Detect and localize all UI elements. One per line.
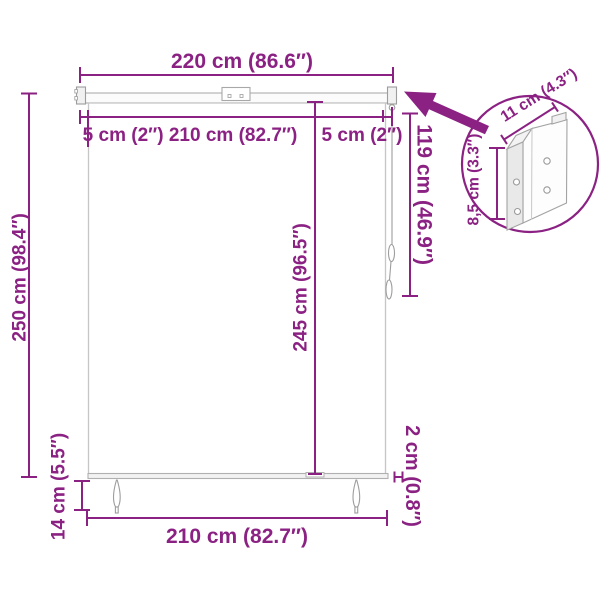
fabric-panel	[89, 103, 386, 474]
dim-label-bottom-width: 210 cm (82.7″)	[87, 525, 387, 548]
dim-label-total-height: 250 cm (98.4″)	[11, 197, 32, 357]
dim-label-top-width: 220 cm (86.6″)	[92, 50, 392, 73]
top-rail	[75, 87, 397, 104]
bottom-rail	[88, 473, 388, 479]
dim-line-bottom-width	[87, 510, 387, 526]
dim-label-bracket-height: 8,5 cm (3.3″)	[465, 120, 482, 240]
dim-label-ground-clearance: 14 cm (5.5″)	[50, 406, 71, 566]
dim-label-fabric-height: 245 cm (96.5″)	[292, 207, 313, 367]
cord-pull-left	[114, 480, 121, 513]
dim-label-cord-height: 119 cm (46.9″)	[412, 115, 435, 275]
cord-pull-right	[353, 480, 360, 513]
roller-blind-dimension-diagram: 220 cm (86.6″) 5 cm (2″) 210 cm (82.7″) …	[0, 0, 600, 600]
dim-label-bar-end-width: 2 cm (0.8″)	[401, 396, 423, 556]
dim-line-ground-clearance	[74, 481, 90, 510]
dim-label-rail-segments: 5 cm (2″) 210 cm (82.7″)	[40, 126, 340, 147]
dim-label-rail-segment-right: 5 cm (2″)	[302, 126, 422, 147]
